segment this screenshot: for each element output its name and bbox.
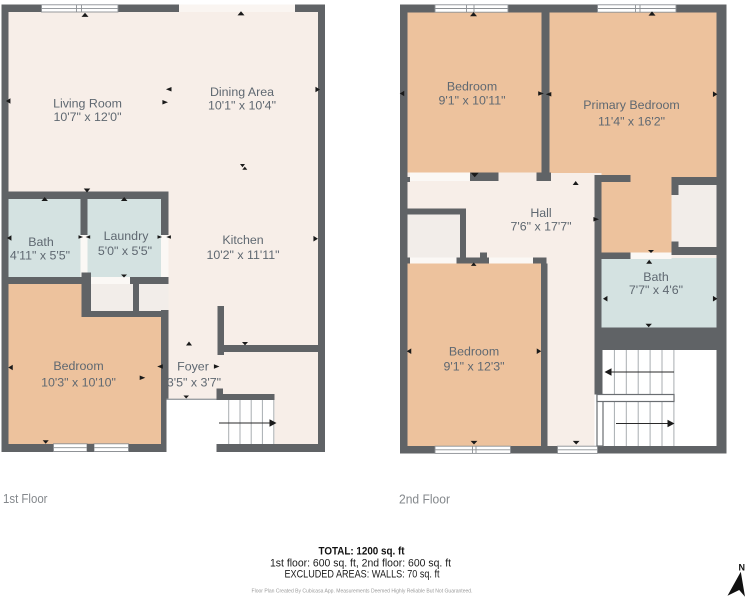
svg-text:N: N <box>739 563 746 573</box>
svg-text:9'1" x 12'3": 9'1" x 12'3" <box>443 360 504 374</box>
svg-text:7'6" x 17'7": 7'6" x 17'7" <box>510 220 571 234</box>
svg-text:EXCLUDED AREAS: WALLS: 70 sq.: EXCLUDED AREAS: WALLS: 70 sq. ft <box>285 569 440 581</box>
svg-text:11'4" x 16'2": 11'4" x 16'2" <box>598 115 665 129</box>
svg-text:Foyer: Foyer <box>177 360 209 374</box>
svg-text:Kitchen: Kitchen <box>222 233 263 247</box>
svg-text:9'1" x 10'11": 9'1" x 10'11" <box>438 94 505 108</box>
svg-text:Hall: Hall <box>530 206 551 220</box>
svg-text:2nd Floor: 2nd Floor <box>399 492 451 507</box>
svg-text:Bath: Bath <box>643 270 669 284</box>
svg-text:7'7" x 4'6": 7'7" x 4'6" <box>629 283 683 297</box>
svg-text:Bedroom: Bedroom <box>447 80 497 94</box>
svg-text:Primary Bedroom: Primary Bedroom <box>583 98 679 112</box>
svg-text:10'3" x 10'10": 10'3" x 10'10" <box>41 376 116 390</box>
svg-text:5'0" x 5'5": 5'0" x 5'5" <box>98 244 152 258</box>
svg-text:1st Floor: 1st Floor <box>3 491 48 506</box>
svg-text:Floor Plan Created By Cubicasa: Floor Plan Created By Cubicasa App. Meas… <box>252 589 473 595</box>
svg-text:3'5" x 3'7": 3'5" x 3'7" <box>167 376 221 390</box>
svg-text:10'7" x 12'0": 10'7" x 12'0" <box>54 110 122 124</box>
svg-text:Bath: Bath <box>28 235 54 249</box>
svg-text:4'11" x 5'5": 4'11" x 5'5" <box>10 249 70 263</box>
svg-text:Dining Area: Dining Area <box>210 85 274 99</box>
svg-text:Bedroom: Bedroom <box>449 345 499 359</box>
svg-text:Laundry: Laundry <box>104 229 150 243</box>
svg-text:10'2" x 11'11": 10'2" x 11'11" <box>206 248 279 262</box>
svg-text:TOTAL: 1200 sq. ft: TOTAL: 1200 sq. ft <box>319 546 405 558</box>
svg-text:Living Room: Living Room <box>53 97 122 111</box>
svg-text:10'1" x 10'4": 10'1" x 10'4" <box>208 99 276 113</box>
svg-text:Bedroom: Bedroom <box>53 359 103 373</box>
